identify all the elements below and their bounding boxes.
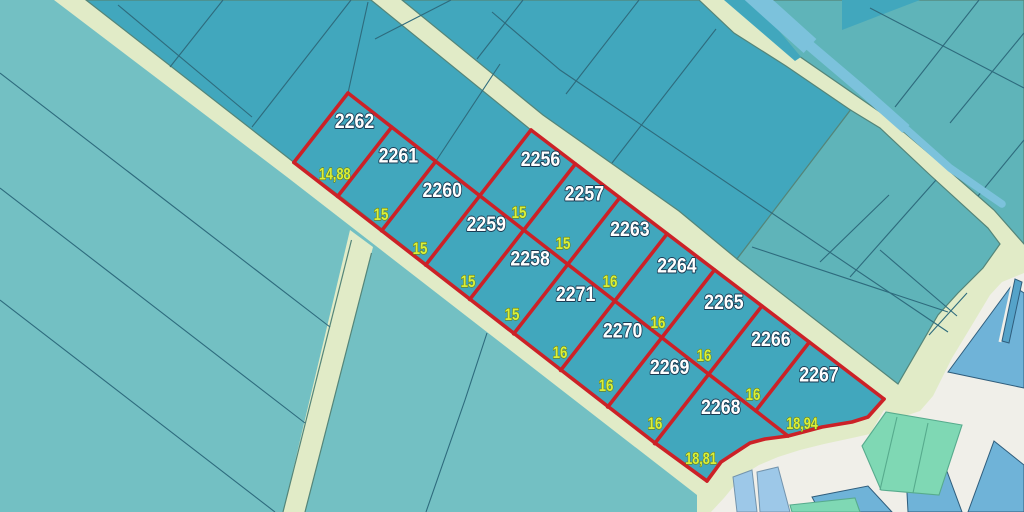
svg-text:2263: 2263 <box>610 218 650 241</box>
svg-text:15: 15 <box>505 306 520 324</box>
svg-text:2264: 2264 <box>657 255 697 278</box>
svg-text:2268: 2268 <box>701 396 741 419</box>
svg-text:2267: 2267 <box>799 364 839 387</box>
svg-text:16: 16 <box>599 377 614 395</box>
svg-text:2260: 2260 <box>423 179 463 202</box>
svg-text:16: 16 <box>746 386 761 404</box>
svg-text:15: 15 <box>374 206 389 224</box>
svg-text:2270: 2270 <box>603 319 643 342</box>
svg-text:2259: 2259 <box>466 213 506 236</box>
svg-text:2269: 2269 <box>650 356 690 379</box>
svg-text:15: 15 <box>413 240 428 258</box>
svg-text:2271: 2271 <box>556 283 596 306</box>
svg-text:2256: 2256 <box>521 148 561 171</box>
svg-text:16: 16 <box>553 344 568 362</box>
svg-text:15: 15 <box>512 204 527 222</box>
svg-text:15: 15 <box>461 273 476 291</box>
svg-text:14,88: 14,88 <box>319 166 351 184</box>
svg-text:16: 16 <box>603 273 618 291</box>
svg-text:18,81: 18,81 <box>685 450 717 468</box>
svg-text:18,94: 18,94 <box>786 415 818 433</box>
svg-text:2265: 2265 <box>704 291 744 314</box>
svg-text:2266: 2266 <box>751 328 791 351</box>
svg-text:2262: 2262 <box>335 110 375 133</box>
svg-text:15: 15 <box>556 235 571 253</box>
svg-text:2261: 2261 <box>379 144 419 167</box>
svg-text:2258: 2258 <box>510 247 550 270</box>
svg-text:16: 16 <box>651 314 666 332</box>
svg-text:16: 16 <box>648 415 663 433</box>
svg-text:16: 16 <box>697 347 712 365</box>
svg-text:2257: 2257 <box>565 182 605 205</box>
